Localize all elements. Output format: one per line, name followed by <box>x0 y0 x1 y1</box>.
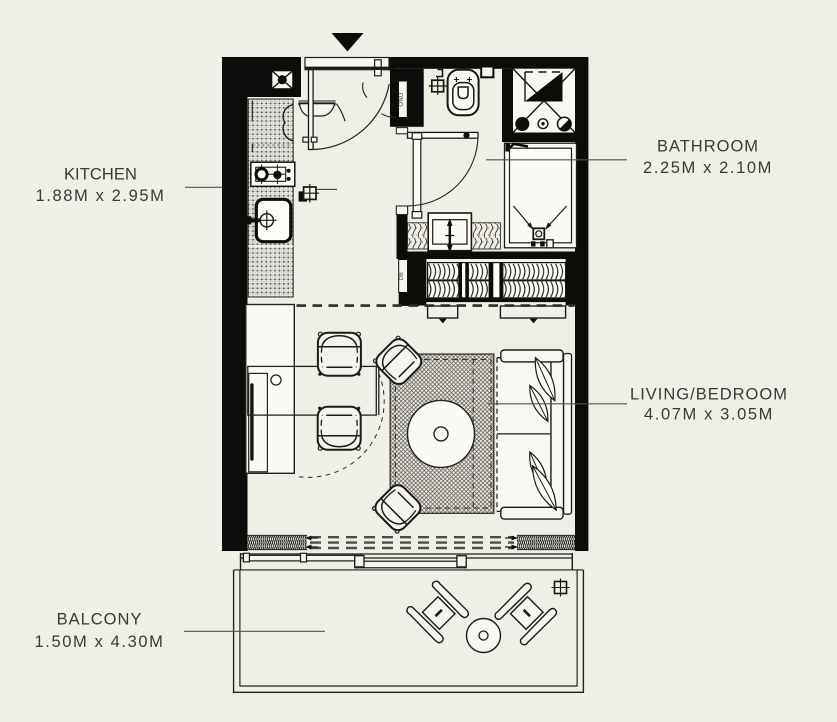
svg-text:2.25M x 2.10M: 2.25M x 2.10M <box>643 159 773 177</box>
svg-text:DB: DB <box>399 272 405 280</box>
svg-text:KITCHEN: KITCHEN <box>64 166 137 184</box>
svg-text:BALCONY: BALCONY <box>57 611 143 629</box>
svg-text:LIVING/BEDROOM: LIVING/BEDROOM <box>630 386 788 404</box>
svg-text:1.88M x 2.95M: 1.88M x 2.95M <box>36 187 166 205</box>
svg-text:BATHROOM: BATHROOM <box>657 138 759 156</box>
svg-text:4.07M x 3.05M: 4.07M x 3.05M <box>644 406 774 424</box>
svg-text:1.50M x 4.30M: 1.50M x 4.30M <box>35 633 165 651</box>
svg-text:ONU: ONU <box>399 92 405 106</box>
